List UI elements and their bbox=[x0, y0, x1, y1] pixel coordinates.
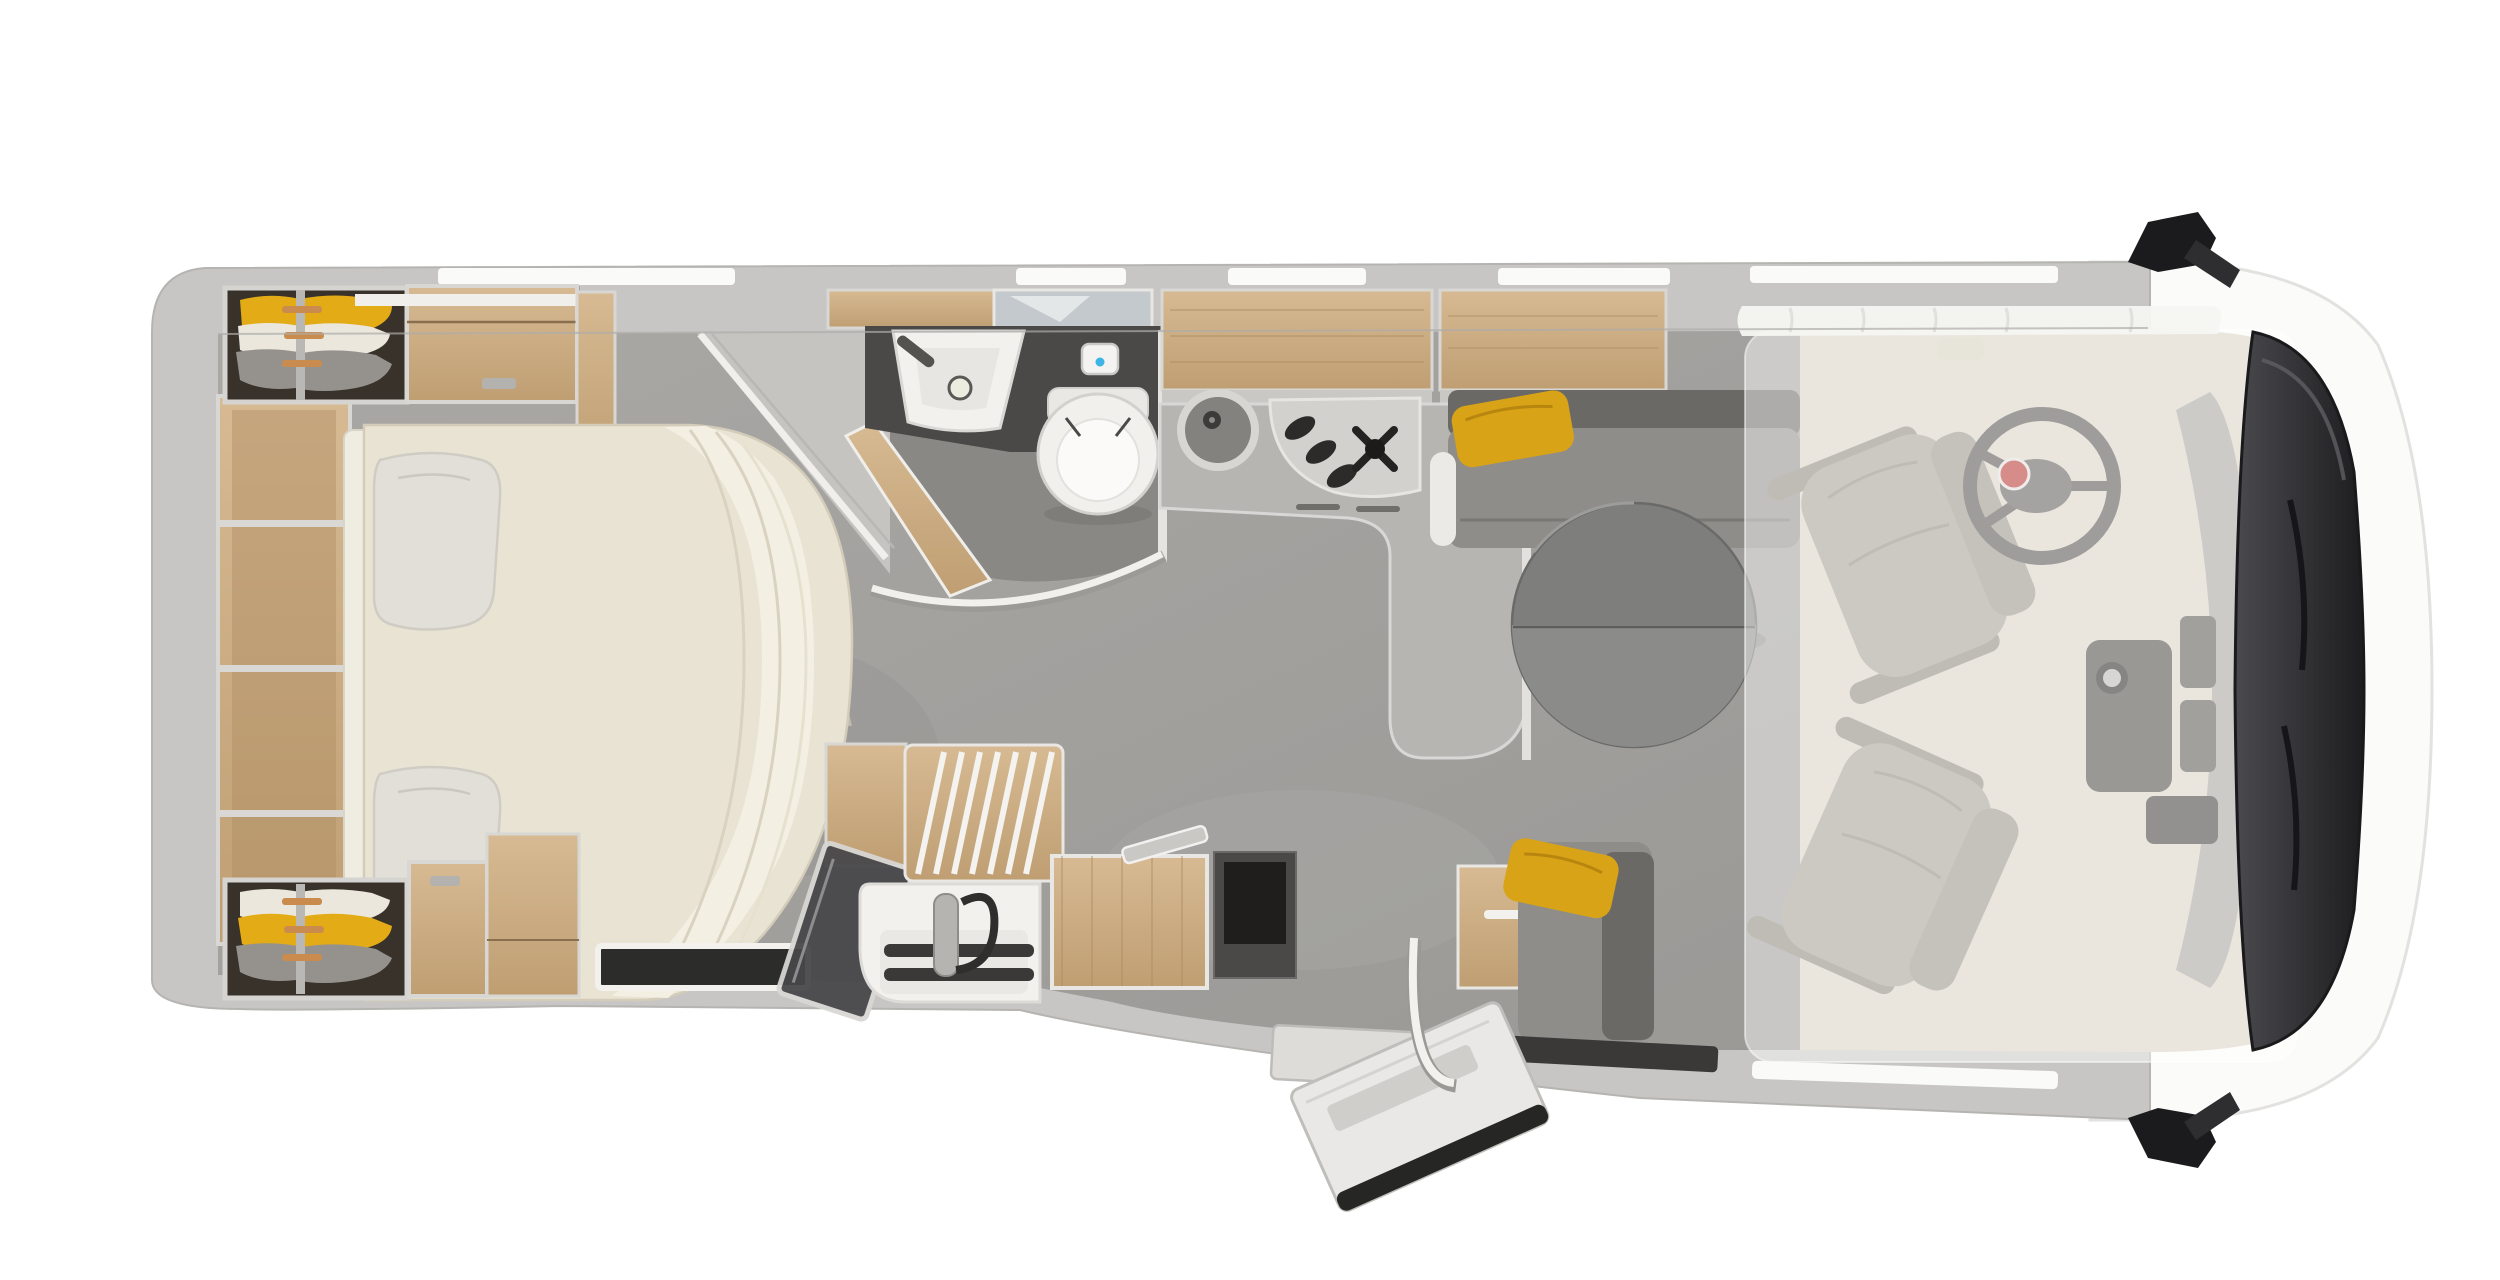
overhead-locker bbox=[1440, 290, 1666, 390]
drawer-handle bbox=[1296, 504, 1340, 510]
worktop-board bbox=[1052, 856, 1207, 988]
appliance-glass bbox=[1224, 862, 1286, 944]
pillow-top bbox=[374, 453, 500, 630]
hanger bbox=[282, 898, 322, 905]
cabinet-handle bbox=[482, 378, 516, 389]
locker-top-edge bbox=[355, 294, 579, 306]
bathroom-mirror bbox=[994, 290, 1152, 328]
soap-dispenser bbox=[1082, 344, 1118, 374]
washbasin bbox=[893, 331, 1024, 431]
window-strip bbox=[1498, 268, 1670, 285]
drop-down-bed bbox=[1738, 306, 2298, 1062]
window-strip bbox=[1750, 266, 2058, 283]
window-strip bbox=[1016, 268, 1126, 285]
dispenser-indicator bbox=[1096, 358, 1105, 367]
slatted-shelf bbox=[905, 745, 1063, 881]
bedroom-bottom-window bbox=[598, 946, 808, 988]
window-strip bbox=[438, 268, 735, 285]
window-dark bbox=[598, 946, 808, 988]
duvet-edge bbox=[1738, 306, 2222, 336]
shelf-divider bbox=[218, 665, 350, 672]
hanger bbox=[282, 360, 322, 367]
hanger bbox=[282, 306, 322, 313]
sink-bowl bbox=[1185, 397, 1251, 463]
shelf-divider bbox=[218, 520, 350, 527]
shelf-divider bbox=[218, 810, 350, 817]
window-strip bbox=[1228, 268, 1366, 285]
bed-handle bbox=[1938, 338, 1984, 360]
chest-handle bbox=[430, 876, 460, 886]
wardrobe-bottom bbox=[225, 880, 407, 998]
windshield bbox=[2235, 332, 2364, 1050]
hanger bbox=[284, 926, 324, 933]
wood-column bbox=[487, 834, 579, 996]
windshield-glass bbox=[2235, 332, 2364, 1050]
galley-appliance bbox=[1214, 852, 1296, 978]
hanger bbox=[282, 954, 322, 961]
drawer-handle bbox=[1356, 506, 1400, 512]
sofa-armrest bbox=[1430, 452, 1456, 546]
drop-down-bed-overlay bbox=[1745, 330, 2297, 1062]
floorplan-canvas: Motorhome floor plan - top view 3D rende… bbox=[0, 0, 2500, 1280]
overhead-locker bbox=[1162, 290, 1432, 390]
bathroom-overhead-shelf bbox=[828, 290, 994, 328]
kitchen-sink bbox=[1177, 389, 1259, 471]
galley-sink-unit bbox=[860, 884, 1040, 1002]
sink-drain-cap bbox=[1209, 417, 1215, 423]
left-shelf-unit bbox=[218, 396, 350, 944]
burner-center bbox=[1365, 439, 1385, 459]
galley-faucet bbox=[934, 894, 958, 976]
basin-drain bbox=[949, 377, 971, 399]
kitchen-overhead-lockers bbox=[1162, 290, 1666, 404]
toilet-seat bbox=[1057, 419, 1139, 501]
